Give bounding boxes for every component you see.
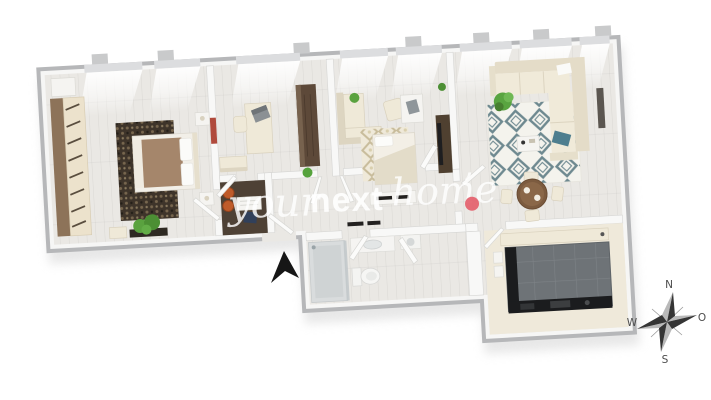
compass-north-label: N bbox=[665, 279, 673, 291]
coffee-table bbox=[517, 136, 540, 152]
floorplan-image: your next home ’ N O S W bbox=[0, 0, 711, 400]
compass-east-label: O bbox=[698, 312, 706, 324]
kitchen-cabinet bbox=[493, 252, 503, 263]
compass-rose: N O S W bbox=[627, 279, 706, 366]
compass-south-label: S bbox=[662, 354, 669, 366]
desk bbox=[245, 103, 274, 154]
desk-chair bbox=[233, 116, 247, 133]
kitchen bbox=[484, 223, 629, 335]
shower bbox=[308, 240, 349, 302]
living-wall-stub-b bbox=[455, 211, 463, 224]
kitchen-cabinet bbox=[494, 266, 504, 277]
floor-grille bbox=[367, 221, 380, 226]
radiator bbox=[51, 77, 76, 96]
watermark-word-home: home bbox=[391, 167, 498, 215]
dining-chair bbox=[501, 189, 513, 204]
entrance-arrow-icon bbox=[271, 251, 299, 283]
bathroom-wall-a bbox=[306, 231, 342, 241]
double-bed bbox=[132, 133, 200, 193]
dining-chair bbox=[525, 209, 540, 222]
watermark-word-next: next bbox=[309, 180, 384, 221]
loveseat bbox=[220, 156, 248, 172]
bedroom-wall-stub bbox=[215, 219, 223, 235]
desk bbox=[400, 94, 424, 123]
floorplan-svg: your next home ’ N O S W bbox=[0, 0, 711, 400]
dining-chair bbox=[551, 186, 564, 201]
compass-west-label: W bbox=[627, 317, 638, 329]
kitchen-wall-a bbox=[466, 223, 478, 232]
